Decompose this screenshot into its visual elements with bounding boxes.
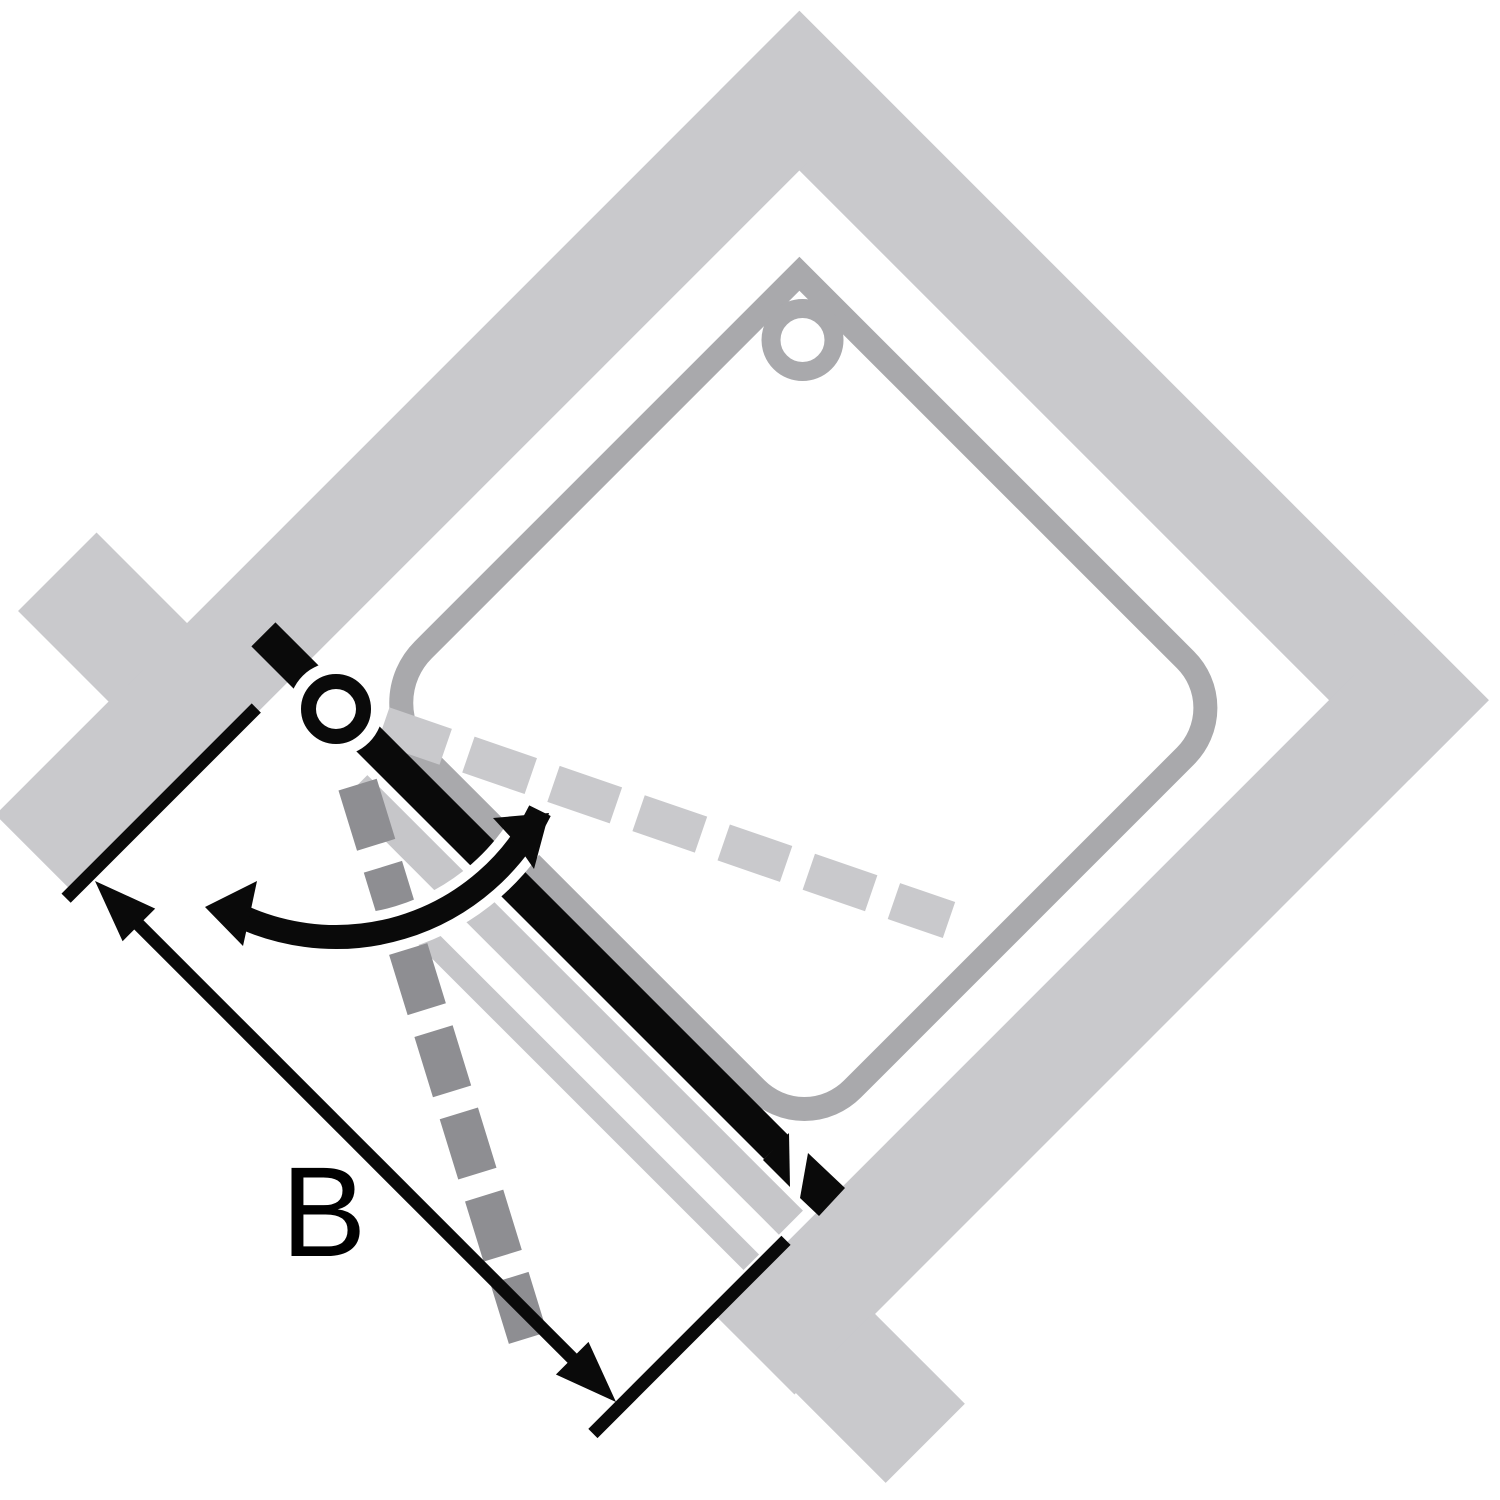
- svg-text:B: B: [281, 1141, 366, 1284]
